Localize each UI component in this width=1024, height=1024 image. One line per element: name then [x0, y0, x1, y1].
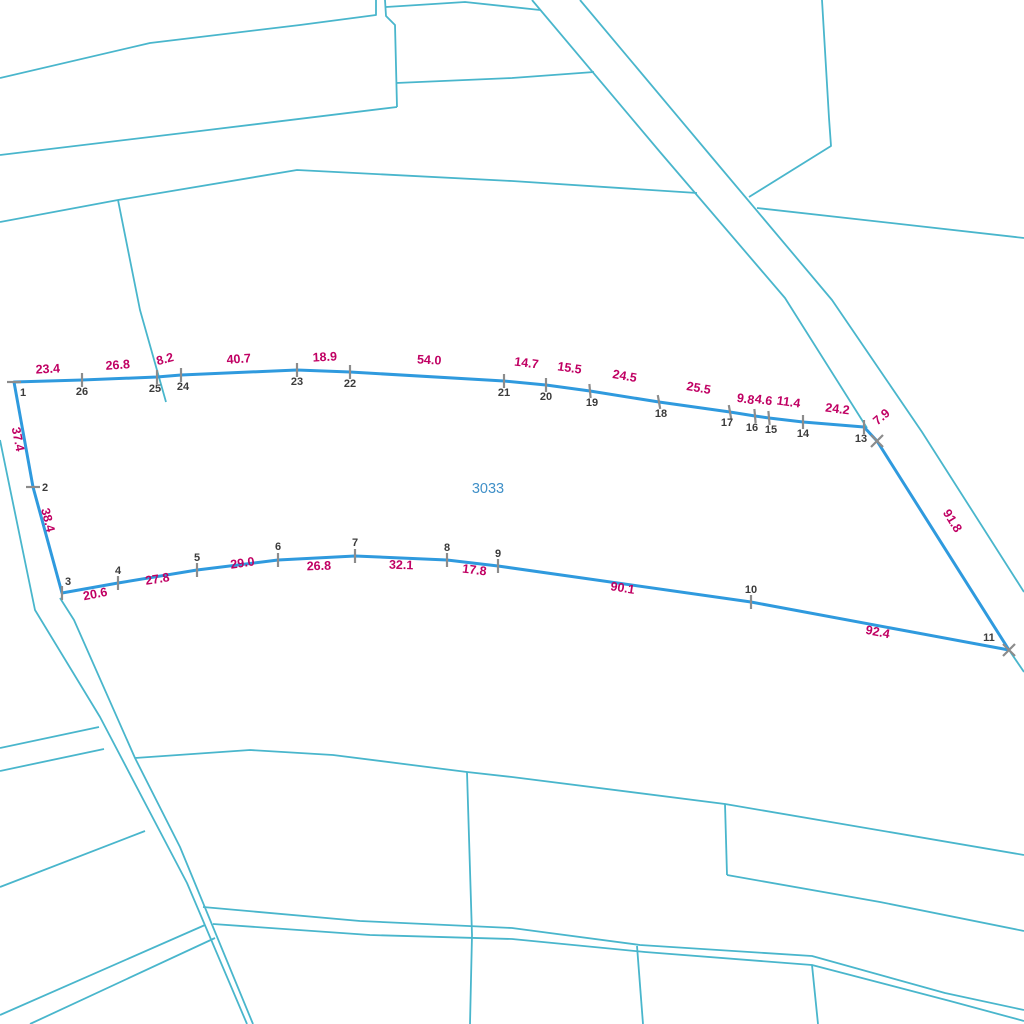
- vertex-number-15: 15: [765, 424, 777, 436]
- vertex-number-24: 24: [177, 381, 190, 393]
- cadastral-line: [386, 2, 540, 10]
- vertex-number-7: 7: [352, 537, 358, 549]
- measurement-label: 14.7: [514, 355, 540, 372]
- cadastral-line: [60, 598, 253, 1024]
- measurement-label: 11.4: [776, 393, 801, 410]
- vertex-number-25: 25: [149, 383, 161, 395]
- cadastral-line: [727, 875, 1024, 931]
- measurement-label: 92.4: [864, 623, 891, 641]
- cadastral-lines-layer: [0, 0, 1024, 1024]
- cadastral-line: [385, 0, 397, 107]
- measurement-label: 25.5: [685, 379, 711, 397]
- cadastral-line: [396, 72, 594, 83]
- vertex-number-22: 22: [344, 378, 356, 390]
- measurement-label: 24.2: [825, 401, 851, 418]
- measurement-label: 18.9: [312, 349, 337, 364]
- cadastral-line: [118, 200, 166, 402]
- measurement-label: 29.0: [229, 554, 255, 571]
- vertex-number-23: 23: [291, 376, 303, 388]
- vertex-number-13: 13: [855, 433, 867, 445]
- measurement-label: 37.4: [9, 426, 27, 453]
- map-canvas[interactable]: 1234567891011131415161718192021222324252…: [0, 0, 1024, 1024]
- cadastral-line: [812, 965, 818, 1024]
- vertex-number-26: 26: [76, 386, 88, 398]
- cadastral-line: [467, 772, 472, 1024]
- measurement-label: 17.8: [462, 562, 488, 579]
- measurement-label: 27.8: [144, 570, 170, 588]
- cadastral-line: [0, 0, 376, 78]
- measurement-label: 91.8: [940, 507, 965, 535]
- cadastral-line: [749, 0, 831, 197]
- map-viewport[interactable]: 1234567891011131415161718192021222324252…: [0, 0, 1024, 1024]
- cadastral-line: [637, 946, 643, 1024]
- measurement-label: 26.8: [306, 559, 331, 574]
- cadastral-line: [30, 938, 215, 1024]
- vertex-number-17: 17: [721, 417, 733, 429]
- cadastral-line: [0, 831, 145, 887]
- measurement-label: 90.1: [610, 579, 636, 597]
- vertex-marker-12: [871, 435, 883, 447]
- cadastral-line: [725, 804, 727, 875]
- vertex-number-4: 4: [115, 565, 122, 577]
- vertex-number-20: 20: [540, 391, 552, 403]
- vertex-number-3: 3: [65, 576, 71, 588]
- cadastral-line: [757, 208, 1024, 238]
- measurement-label: 15.5: [557, 359, 583, 376]
- vertex-marker-16: [754, 409, 755, 423]
- vertex-marker-18: [658, 395, 660, 409]
- measurement-label: 8.2: [155, 350, 175, 368]
- vertex-marker-15: [768, 411, 769, 425]
- measurement-label: 7.9: [870, 406, 892, 428]
- parcel-boundary[interactable]: [14, 370, 1009, 650]
- vertex-number-21: 21: [498, 387, 510, 399]
- cadastral-line: [135, 750, 1024, 855]
- vertex-number-18: 18: [655, 408, 667, 420]
- parcel-id-label: 3033: [472, 481, 504, 497]
- measurement-label: 23.4: [35, 361, 60, 376]
- vertex-number-16: 16: [746, 422, 758, 434]
- cadastral-line: [0, 170, 697, 222]
- vertex-number-8: 8: [444, 542, 450, 554]
- vertex-number-1: 1: [20, 387, 26, 399]
- vertex-number-19: 19: [586, 397, 598, 409]
- measurement-label: 4.6: [754, 392, 773, 409]
- vertex-marker-19: [589, 384, 590, 398]
- measurement-label: 9.8: [736, 391, 755, 408]
- cadastral-line: [580, 0, 1024, 592]
- vertex-markers-layer: [7, 363, 1015, 656]
- cadastral-line: [203, 907, 1024, 1010]
- cadastral-line: [0, 749, 104, 771]
- cadastral-line: [0, 107, 397, 155]
- cadastral-line: [0, 925, 205, 1015]
- cadastral-line: [0, 727, 99, 748]
- cadastral-line: [213, 924, 1024, 1021]
- vertex-number-6: 6: [275, 541, 281, 553]
- vertex-number-5: 5: [194, 552, 200, 564]
- measurement-label: 24.5: [611, 367, 637, 385]
- vertex-number-2: 2: [42, 482, 48, 494]
- measurement-label: 32.1: [389, 558, 414, 573]
- measurement-label: 38.4: [38, 507, 57, 534]
- vertex-number-10: 10: [745, 584, 757, 596]
- vertex-number-14: 14: [797, 428, 810, 440]
- vertex-number-9: 9: [495, 548, 501, 560]
- vertex-number-11: 11: [983, 632, 995, 644]
- measurement-label: 40.7: [226, 351, 251, 367]
- measurement-label: 26.8: [105, 357, 130, 373]
- measurement-label: 54.0: [417, 352, 442, 367]
